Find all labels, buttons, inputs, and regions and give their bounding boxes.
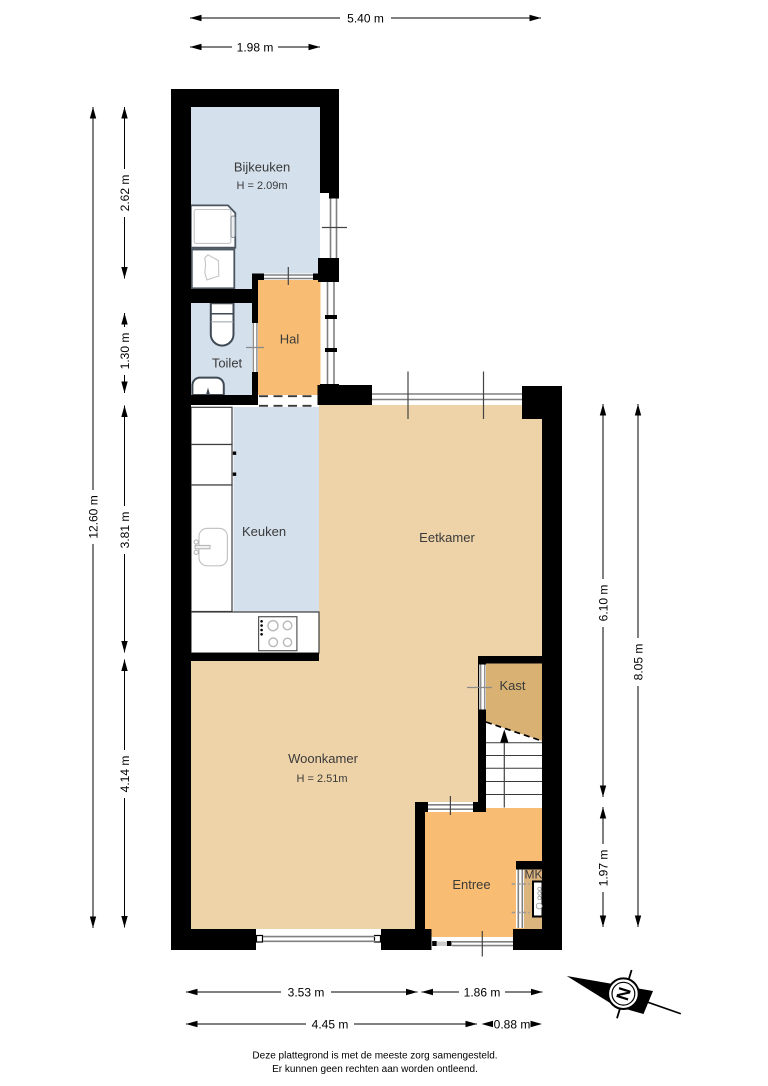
svg-text:Woonkamer: Woonkamer (288, 751, 359, 766)
svg-text:3.81 m: 3.81 m (118, 512, 132, 549)
svg-text:12.60 m: 12.60 m (86, 495, 100, 538)
svg-text:6.10 m: 6.10 m (596, 585, 610, 622)
svg-text:Bijkeuken: Bijkeuken (234, 160, 290, 175)
svg-text:Deze plattegrond is met de mee: Deze plattegrond is met de meeste zorg s… (252, 1051, 497, 1062)
svg-text:4.14 m: 4.14 m (118, 756, 132, 793)
svg-text:H = 2.51m: H = 2.51m (296, 773, 347, 785)
svg-text:Er kunnen geen rechten aan wor: Er kunnen geen rechten aan worden ontlee… (272, 1064, 478, 1075)
svg-text:H = 2.09m: H = 2.09m (236, 180, 287, 192)
svg-text:1.30 m: 1.30 m (118, 333, 132, 370)
svg-text:2.62 m: 2.62 m (118, 175, 132, 212)
svg-text:MK: MK (525, 867, 543, 881)
svg-text:Kast: Kast (499, 678, 525, 693)
svg-text:Toilet: Toilet (212, 355, 243, 370)
svg-text:3.53 m: 3.53 m (288, 985, 325, 999)
svg-text:0.88 m: 0.88 m (494, 1017, 531, 1031)
svg-text:5.40 m: 5.40 m (347, 11, 384, 25)
svg-text:Eetkamer: Eetkamer (419, 530, 475, 545)
svg-text:Hal: Hal (280, 332, 300, 347)
svg-text:Entree: Entree (452, 877, 490, 892)
svg-text:4.45 m: 4.45 m (312, 1017, 349, 1031)
svg-text:1.97 m: 1.97 m (596, 850, 610, 887)
svg-text:1.86 m: 1.86 m (464, 985, 501, 999)
svg-text:Keuken: Keuken (242, 524, 286, 539)
svg-text:8.05 m: 8.05 m (631, 644, 645, 681)
svg-text:1.98 m: 1.98 m (237, 40, 274, 54)
